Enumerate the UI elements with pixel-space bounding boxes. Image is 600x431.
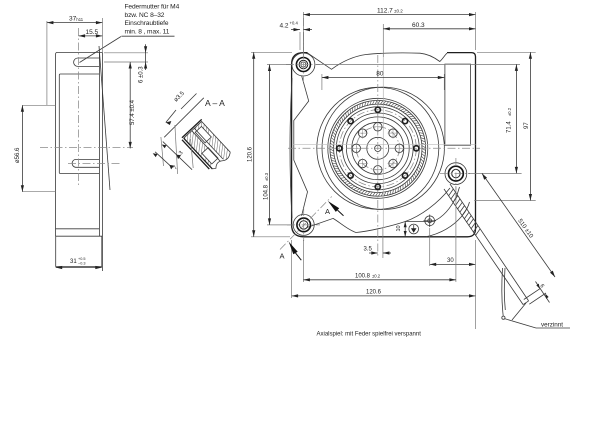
svg-text:A: A: [280, 252, 285, 261]
svg-text:±0.3: ±0.3: [264, 172, 269, 181]
svg-text:104.8: 104.8: [263, 184, 269, 200]
svg-text:6 ±0.3: 6 ±0.3: [139, 66, 145, 83]
svg-text:10: 10: [396, 225, 402, 231]
svg-text:bzw. NC 8–32: bzw. NC 8–32: [125, 12, 165, 19]
svg-text:h11: h11: [76, 17, 83, 22]
svg-text:31: 31: [70, 259, 77, 265]
svg-text:4.2: 4.2: [280, 23, 289, 30]
svg-text:120.6: 120.6: [248, 146, 254, 162]
svg-text:57.4 ±0.4: 57.4 ±0.4: [130, 99, 136, 125]
svg-text:±0.2: ±0.2: [372, 273, 381, 278]
svg-text:80: 80: [376, 71, 384, 78]
svg-text:A – A: A – A: [205, 98, 225, 108]
svg-text:97: 97: [524, 122, 530, 129]
svg-text:Federmutter für M4: Federmutter für M4: [125, 4, 180, 11]
svg-text:120.6: 120.6: [366, 289, 382, 295]
svg-text:ø56.6: ø56.6: [15, 147, 21, 163]
svg-text:112.7: 112.7: [377, 8, 393, 15]
svg-text:verzinnt: verzinnt: [541, 322, 563, 329]
svg-text:−0.3: −0.3: [78, 261, 86, 265]
svg-text:15.5: 15.5: [86, 29, 99, 36]
svg-text:30: 30: [447, 258, 454, 264]
svg-text:3.5: 3.5: [364, 247, 373, 253]
svg-text:60.3: 60.3: [412, 22, 425, 29]
svg-text:Einschraubtiefe: Einschraubtiefe: [125, 20, 169, 27]
svg-text:100.8: 100.8: [355, 273, 371, 279]
svg-text:A: A: [325, 207, 330, 216]
svg-text:+0.4: +0.4: [290, 21, 299, 26]
svg-text:71.4: 71.4: [507, 121, 513, 133]
svg-text:±0.2: ±0.2: [394, 9, 403, 14]
svg-text:min. 8 , max. 11: min. 8 , max. 11: [125, 28, 170, 35]
svg-text:±0.2: ±0.2: [507, 107, 512, 116]
svg-text:Axialspiel: mit Feder spielfre: Axialspiel: mit Feder spielfrei verspann…: [317, 332, 422, 338]
